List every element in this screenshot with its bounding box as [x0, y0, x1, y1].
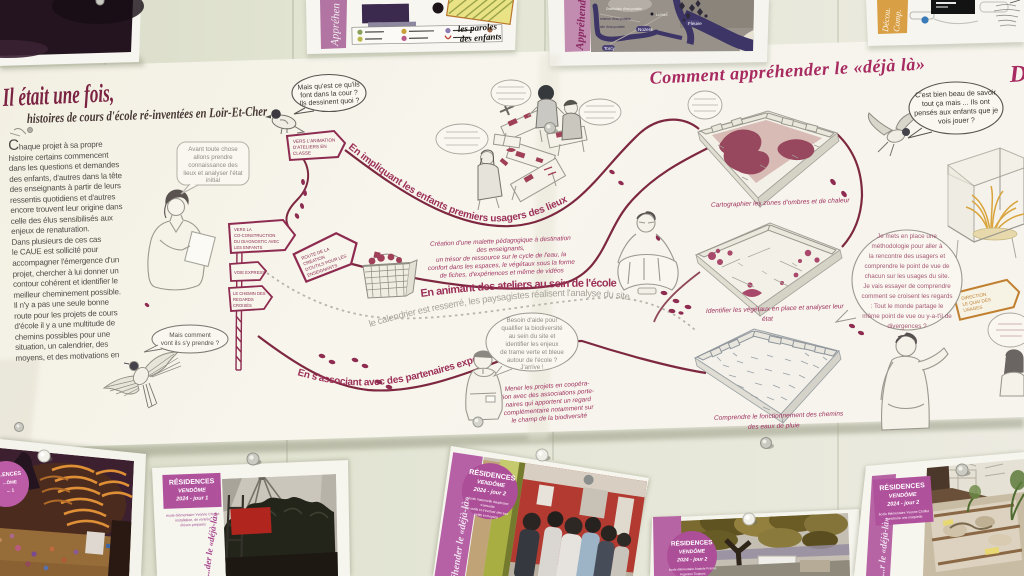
svg-text:CROISÉS: CROISÉS [233, 303, 252, 308]
svg-text:comment se croisent les regard: comment se croisent les regards [862, 293, 953, 300]
svg-text:Besoin d'aide pour: Besoin d'aide pour [506, 317, 557, 324]
svg-text:: Tout le monde partage le: : Tout le monde partage le [871, 303, 944, 310]
svg-text:de trame verte et bleue: de trame verte et bleue [500, 349, 564, 356]
svg-text:Nozers: Nozers [638, 27, 653, 32]
svg-text:J'arrive !: J'arrive ! [520, 364, 543, 371]
svg-text:Lo Nord: Lo Nord [656, 13, 668, 17]
svg-text:LES ENFANTS: LES ENFANTS [234, 245, 263, 250]
svg-text:CLASSE: CLASSE [293, 150, 311, 156]
svg-text:vois jouer ?: vois jouer ? [938, 115, 975, 125]
svg-text:CO-CONSTRUCTION: CO-CONSTRUCTION [234, 233, 275, 238]
svg-text:autour de l'école ?: autour de l'école ? [507, 357, 558, 364]
svg-text:lieux et analyser l'état: lieux et analyser l'état [183, 170, 243, 177]
svg-text:Je mets en place une: Je mets en place une [877, 233, 937, 240]
svg-text:2024 - jour 1: 2024 - jour 1 [175, 495, 208, 502]
svg-text:même point de vue ou y-a-t'il: même point de vue ou y-a-t'il de [862, 313, 952, 320]
svg-text:retenue d'eau potable: retenue d'eau potable [600, 17, 631, 21]
svg-text:Avant toute chose: Avant toute chose [188, 146, 238, 153]
svg-text:allons prendre: allons prendre [193, 154, 233, 161]
svg-text:initial: initial [206, 177, 220, 184]
svg-text:DU DIAGNOSTIC AVEC: DU DIAGNOSTIC AVEC [234, 239, 279, 244]
svg-text:Distribution d'eau potable: Distribution d'eau potable [606, 7, 642, 11]
svg-text:qualifier la biodiversité: qualifier la biodiversité [501, 325, 563, 332]
svg-text:Il était une fois,: Il était une fois, [1, 78, 114, 112]
svg-text:... 1: ... 1 [7, 487, 15, 493]
svg-text:Appréhen: Appréhen [329, 2, 343, 47]
svg-text:LE CHEMIN DES: LE CHEMIN DES [233, 291, 266, 296]
svg-text:Argenton Toujours: Argenton Toujours [680, 572, 706, 576]
svg-text:Mais comment: Mais comment [169, 332, 211, 339]
svg-text:chacun sur les usages du site.: chacun sur les usages du site. [865, 273, 950, 280]
svg-text:Torcy: Torcy [604, 46, 616, 51]
svg-text:la rencontre des usagers et: la rencontre des usagers et [869, 253, 946, 260]
svg-text:connaissance des: connaissance des [188, 162, 238, 169]
svg-text:REGARDS: REGARDS [233, 297, 254, 302]
svg-text:2024 - jour 2: 2024 - jour 2 [676, 556, 708, 563]
svg-text:divergences ?: divergences ? [887, 323, 927, 330]
svg-text:D: D [1008, 61, 1024, 88]
svg-text:identifier les enjeux: identifier les enjeux [506, 341, 560, 348]
svg-text:Fleuve: Fleuve [688, 21, 702, 26]
svg-text:méthodologie pour aller à: méthodologie pour aller à [871, 243, 943, 250]
svg-text:site d'eau potable: site d'eau potable [600, 25, 625, 29]
svg-text:vont ils s'y prendre ?: vont ils s'y prendre ? [161, 340, 220, 347]
svg-text:état: état [762, 316, 774, 323]
svg-text:au sein du site et: au sein du site et [509, 333, 556, 340]
svg-text:VOIE EXPRESS: VOIE EXPRESS [234, 270, 265, 275]
svg-text:Comp.: Comp. [891, 9, 903, 32]
svg-text:Je vais essayer de comprendre: Je vais essayer de comprendre [863, 283, 951, 290]
svg-text:VERS LA: VERS LA [234, 227, 252, 232]
svg-text:comprendre le point de vue de: comprendre le point de vue de [864, 263, 950, 270]
